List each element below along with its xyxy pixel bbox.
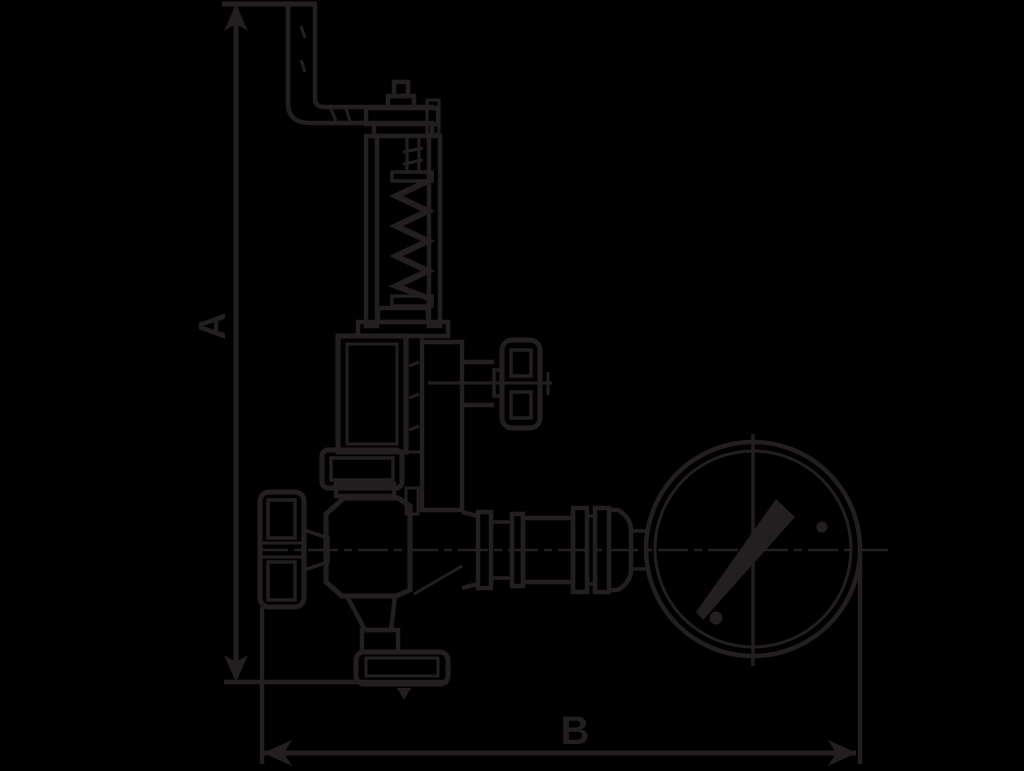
bonnet-inner: [347, 344, 397, 444]
gauge-face-screw: [817, 522, 828, 533]
drawing-canvas: A B: [0, 0, 1024, 766]
lever-pin-mark: [301, 26, 305, 38]
outlet-neck: [362, 630, 398, 652]
dimension-label-a: A: [192, 312, 234, 339]
knob-rim-upper: [511, 350, 531, 376]
dimension-b: B: [262, 556, 860, 766]
yoke-post-left: [366, 136, 377, 326]
outlet-flange-inner: [366, 658, 438, 676]
cap-lower-plate: [374, 124, 432, 136]
guide-mark: [409, 362, 419, 366]
valve-body: [326, 484, 462, 596]
gauge-needle: [696, 499, 795, 620]
branch-column: [422, 342, 462, 510]
flow-arrow-icon: [397, 688, 411, 700]
handwheel-rim-upper: [268, 500, 295, 538]
lever-pin-mark: [331, 109, 336, 121]
gland-nut-inner: [331, 458, 393, 480]
body-block: [326, 498, 410, 596]
gauge-face-screw: [710, 612, 723, 625]
knob-rim-lower: [511, 392, 531, 418]
handwheel-rim-lower: [268, 562, 295, 600]
spring-seat-bottom: [392, 296, 432, 306]
lever-pin-mark: [301, 60, 305, 72]
dimension-label-b: B: [561, 709, 590, 753]
spindle-and-cap: [366, 82, 439, 136]
guide-mark: [409, 426, 419, 430]
lever-inner-edge: [315, 3, 434, 107]
outlet-skirt: [347, 596, 395, 630]
compression-spring: [396, 181, 428, 298]
bonnet: [338, 336, 422, 452]
valve-technical-drawing: A B: [0, 0, 1024, 766]
guide-mark: [409, 394, 419, 398]
body-junction-line: [414, 566, 462, 594]
test-branch: [422, 340, 552, 510]
lever-pin-mark: [346, 109, 350, 121]
outlet: [347, 596, 448, 700]
spring-housing: [358, 136, 448, 336]
